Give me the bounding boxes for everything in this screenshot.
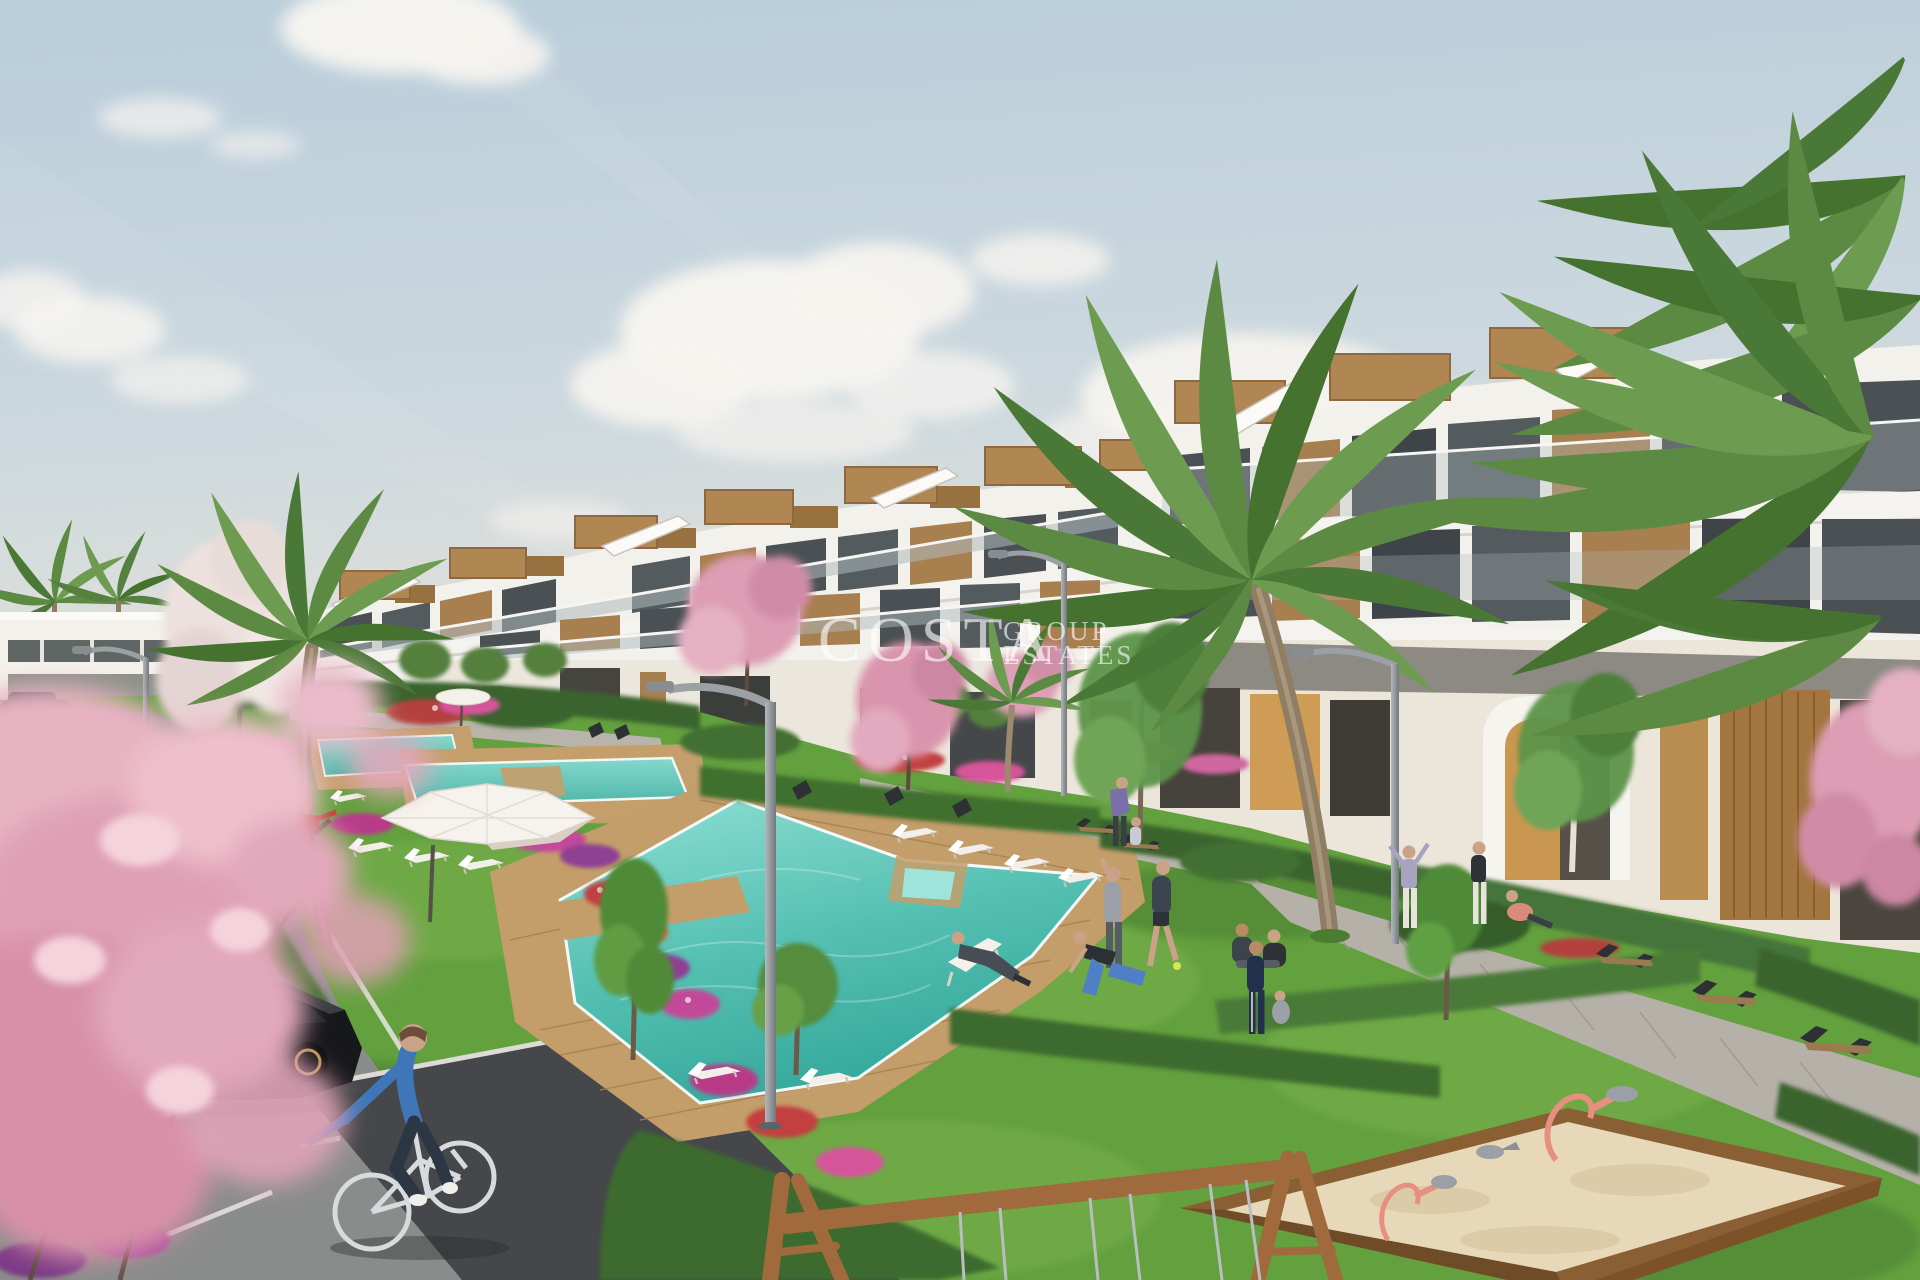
jacuzzi	[902, 868, 955, 900]
render-image: COSTA GROUP ESTATES	[0, 0, 1920, 1280]
watermark-sub2: ESTATES	[1003, 640, 1134, 670]
